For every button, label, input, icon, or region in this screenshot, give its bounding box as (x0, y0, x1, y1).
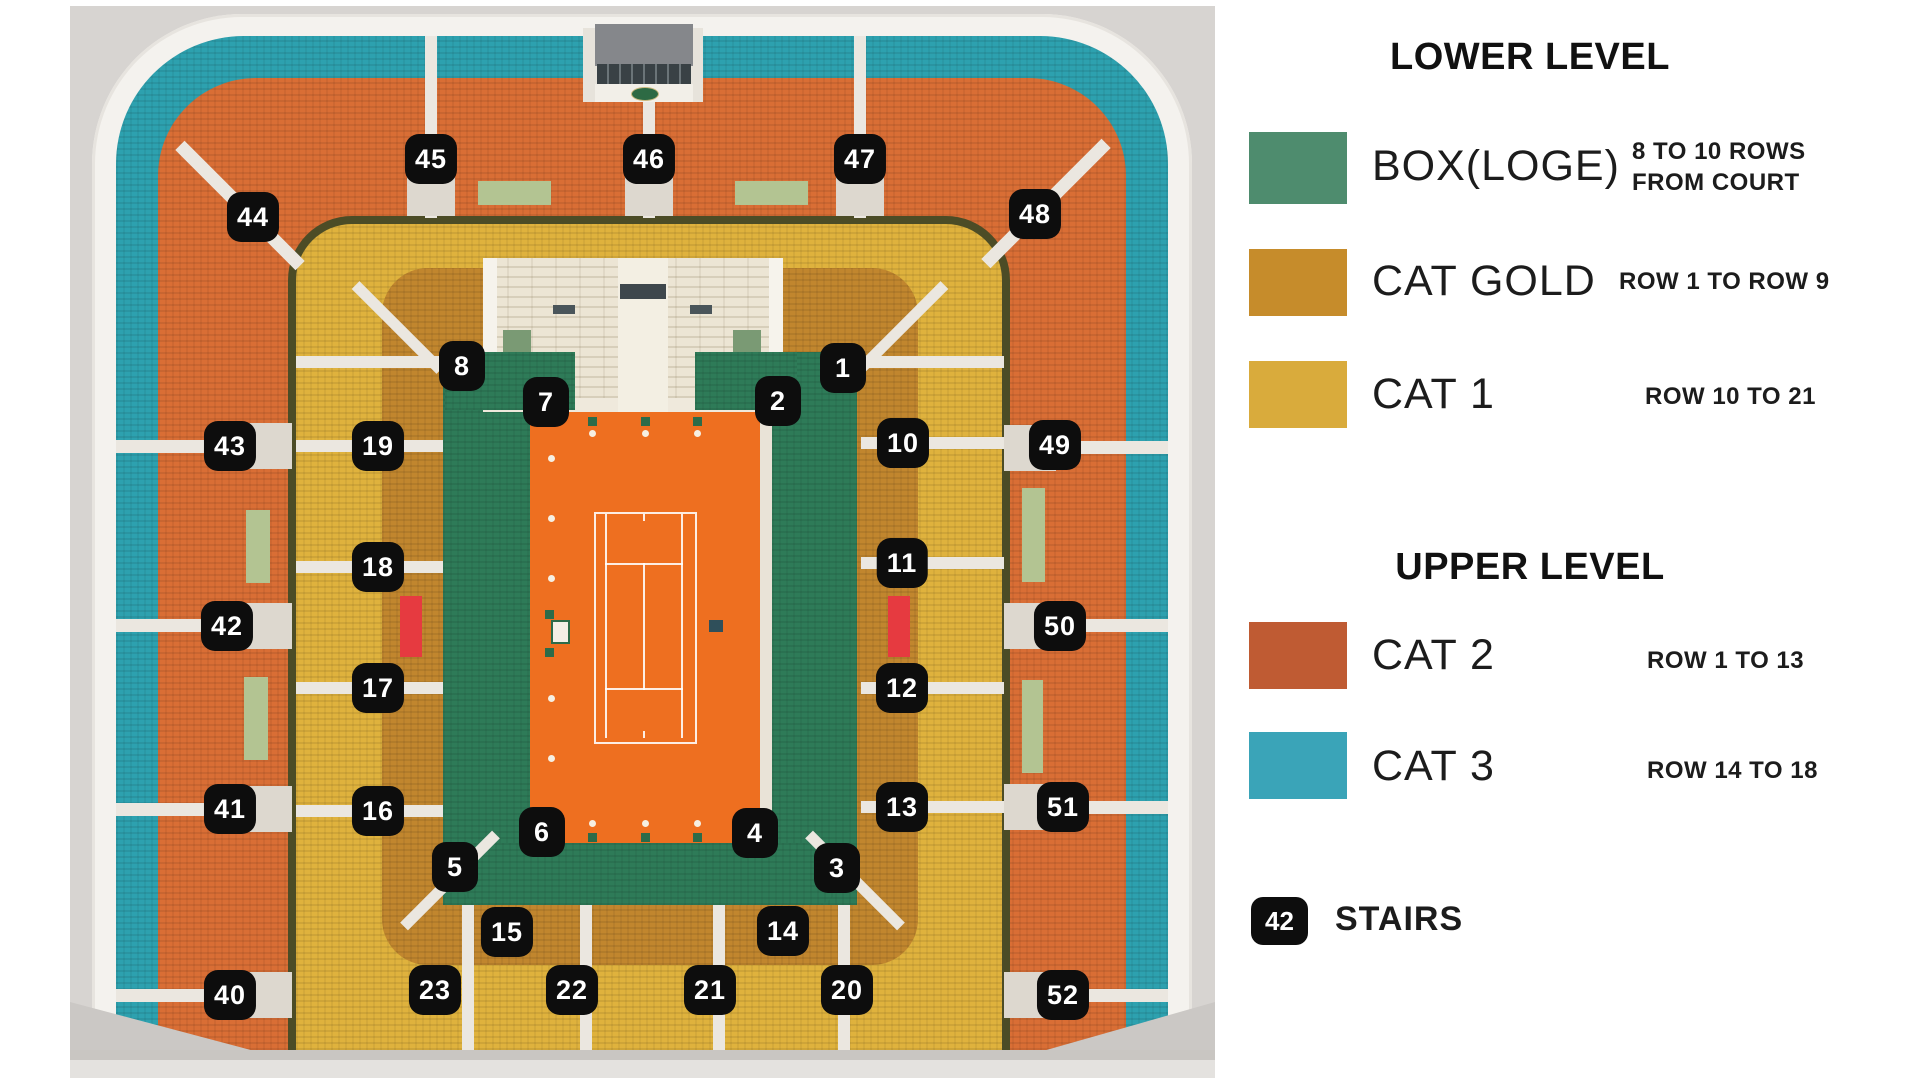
shell-bottom-edge (70, 1050, 1215, 1060)
line-judge-chair (548, 575, 555, 582)
legend-label-cat1: CAT 1 (1372, 370, 1495, 419)
standing-box (735, 181, 808, 205)
loge-screen (620, 284, 666, 299)
line-judge-chair (694, 430, 701, 437)
section-badge-45[interactable]: 45 (405, 134, 457, 184)
tournament-logo (631, 87, 659, 101)
legend-swatch-cat2 (1249, 622, 1347, 689)
court-walkway (758, 412, 772, 843)
section-badge-46[interactable]: 46 (623, 134, 675, 184)
line-judge-chair (642, 820, 649, 827)
court-lines (594, 512, 697, 744)
court-line (643, 563, 645, 690)
box-seats-right (772, 352, 857, 905)
legend-swatch-cat-gold (1249, 249, 1347, 316)
standing-box (1022, 680, 1043, 773)
red-block (400, 596, 422, 657)
legend-title-upper: UPPER LEVEL (1240, 546, 1820, 589)
court-marker (693, 417, 702, 426)
section-badge-47[interactable]: 47 (834, 134, 886, 184)
aisle-bar (462, 900, 474, 1054)
section-badge-40[interactable]: 40 (204, 970, 256, 1020)
court-marker (641, 417, 650, 426)
section-badge-11[interactable]: 11 (877, 538, 928, 588)
section-badge-1[interactable]: 1 (820, 343, 866, 393)
line-judge-chair (694, 820, 701, 827)
section-badge-21[interactable]: 21 (684, 965, 736, 1015)
legend-label-cat-gold: CAT GOLD (1372, 257, 1596, 306)
section-badge-20[interactable]: 20 (821, 965, 873, 1015)
legend-label-cat3: CAT 3 (1372, 742, 1495, 791)
box-seats-bottom (460, 843, 840, 905)
loge-center-aisle (618, 258, 668, 412)
court-line (605, 514, 607, 738)
umpire-stand (551, 620, 570, 644)
standing-box (244, 677, 268, 760)
loge-booth (553, 305, 575, 314)
legend-desc-cat-gold: ROW 1 TO ROW 9 (1619, 266, 1830, 297)
section-badge-10[interactable]: 10 (877, 418, 929, 468)
standing-box (246, 510, 270, 583)
standing-box (478, 181, 551, 205)
line-judge-chair (548, 695, 555, 702)
legend-desc-box: 8 TO 10 ROWS FROM COURT (1632, 136, 1806, 198)
line-judge-chair (548, 515, 555, 522)
section-badge-2[interactable]: 2 (755, 376, 801, 426)
loge-green-patch (733, 330, 761, 352)
legend-desc-cat3: ROW 14 TO 18 (1647, 755, 1818, 786)
legend-swatch-box (1249, 132, 1347, 204)
court-marker (588, 833, 597, 842)
seating-map-page: 4546474448872119104349181142501712161341… (0, 0, 1920, 1080)
section-badge-43[interactable]: 43 (204, 421, 256, 471)
section-badge-50[interactable]: 50 (1034, 601, 1086, 651)
line-judge-chair (642, 430, 649, 437)
camera-platform (709, 620, 723, 632)
court-line (643, 731, 645, 738)
umpire-chair (545, 610, 554, 619)
legend-stairs-badge: 42 (1251, 897, 1308, 945)
legend-desc-line: 8 TO 10 ROWS (1632, 138, 1806, 165)
loge-booth (690, 305, 712, 314)
legend-desc-cat2: ROW 1 TO 13 (1647, 645, 1804, 676)
section-badge-3[interactable]: 3 (814, 843, 860, 893)
court-line (643, 514, 645, 521)
section-badge-13[interactable]: 13 (876, 782, 928, 832)
line-judge-chair (589, 430, 596, 437)
legend-stairs-label: STAIRS (1335, 900, 1463, 939)
section-badge-23[interactable]: 23 (409, 965, 461, 1015)
section-badge-8[interactable]: 8 (439, 341, 485, 391)
court-marker (693, 833, 702, 842)
shell-bottom-strip (70, 1060, 1215, 1078)
section-badge-4[interactable]: 4 (732, 808, 778, 858)
section-badge-48[interactable]: 48 (1009, 189, 1061, 239)
section-badge-14[interactable]: 14 (757, 906, 809, 956)
section-badge-19[interactable]: 19 (352, 421, 404, 471)
section-badge-41[interactable]: 41 (204, 784, 256, 834)
section-badge-22[interactable]: 22 (546, 965, 598, 1015)
court-line (681, 514, 683, 738)
section-badge-15[interactable]: 15 (481, 907, 533, 957)
legend-desc-cat1: ROW 10 TO 21 (1645, 381, 1816, 412)
legend-label-cat2: CAT 2 (1372, 631, 1495, 680)
standing-box (1022, 488, 1045, 582)
legend-label-box: BOX(LOGE) (1372, 142, 1620, 191)
section-badge-6[interactable]: 6 (519, 807, 565, 857)
court-marker (641, 833, 650, 842)
red-block (888, 596, 910, 657)
section-badge-49[interactable]: 49 (1029, 420, 1081, 470)
section-badge-52[interactable]: 52 (1037, 970, 1089, 1020)
line-judge-chair (589, 820, 596, 827)
line-judge-chair (548, 455, 555, 462)
section-badge-42[interactable]: 42 (201, 601, 253, 651)
line-judge-chair (548, 755, 555, 762)
legend-title-lower: LOWER LEVEL (1240, 36, 1820, 79)
umpire-chair (545, 648, 554, 657)
section-badge-18[interactable]: 18 (352, 542, 404, 592)
scoreboard-windows (597, 64, 691, 84)
scoreboard-screen (595, 24, 693, 66)
section-badge-5[interactable]: 5 (432, 842, 478, 892)
legend-swatch-cat1 (1249, 361, 1347, 428)
section-badge-51[interactable]: 51 (1037, 782, 1089, 832)
section-badge-7[interactable]: 7 (523, 377, 569, 427)
section-badge-44[interactable]: 44 (227, 192, 279, 242)
loge-green-patch (503, 330, 531, 352)
box-seats-left (443, 352, 530, 905)
court-marker (588, 417, 597, 426)
legend-swatch-cat3 (1249, 732, 1347, 799)
legend-desc-line: FROM COURT (1632, 169, 1800, 196)
section-badge-16[interactable]: 16 (352, 786, 404, 836)
section-badge-12[interactable]: 12 (876, 663, 928, 713)
section-badge-17[interactable]: 17 (352, 663, 404, 713)
